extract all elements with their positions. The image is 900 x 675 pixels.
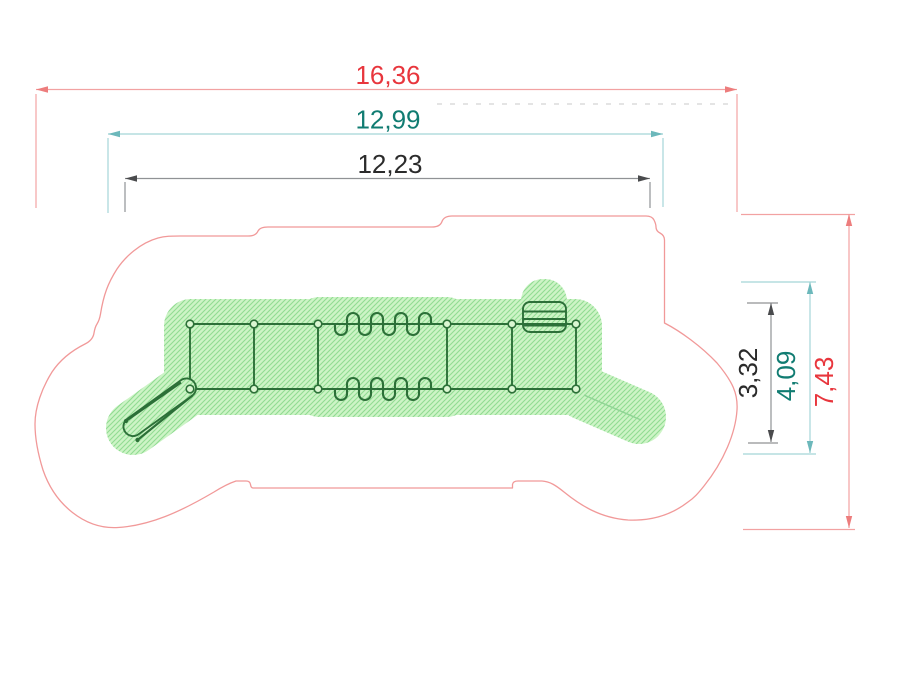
arrow-left — [36, 86, 48, 92]
dim-total-height-label: 7,43 — [809, 357, 839, 408]
impact-blob-right-slide — [584, 393, 639, 417]
technical-drawing-canvas: 16,36 12,99 12,23 3,32 4,09 — [0, 0, 900, 675]
dim-equipment-width: 12,23 — [125, 149, 650, 212]
slide-rail-end-dot — [124, 419, 128, 423]
impact-area — [133, 279, 639, 428]
dim-equipment-width-label: 12,23 — [357, 149, 422, 179]
arrow-down — [768, 430, 774, 442]
arrow-left — [108, 131, 120, 137]
arrow-up — [846, 214, 852, 226]
playground-plan-svg: 16,36 12,99 12,23 3,32 4,09 — [0, 0, 900, 675]
dim-total-width: 16,36 — [36, 60, 737, 212]
dim-total-width-label: 16,36 — [355, 60, 420, 90]
arrow-right — [725, 86, 737, 92]
arrow-right — [638, 175, 650, 181]
arrow-up — [807, 282, 813, 294]
arrow-down — [846, 516, 852, 528]
arrow-up — [768, 303, 774, 315]
dim-safety-width-label: 12,99 — [355, 105, 420, 135]
dim-safety-height-label: 4,09 — [771, 351, 801, 402]
slide-rail-end-dot — [135, 438, 139, 442]
arrow-right — [651, 131, 663, 137]
arrow-left — [125, 175, 137, 181]
arrow-down — [807, 441, 813, 453]
dim-equipment-height-label: 3,32 — [733, 348, 763, 399]
